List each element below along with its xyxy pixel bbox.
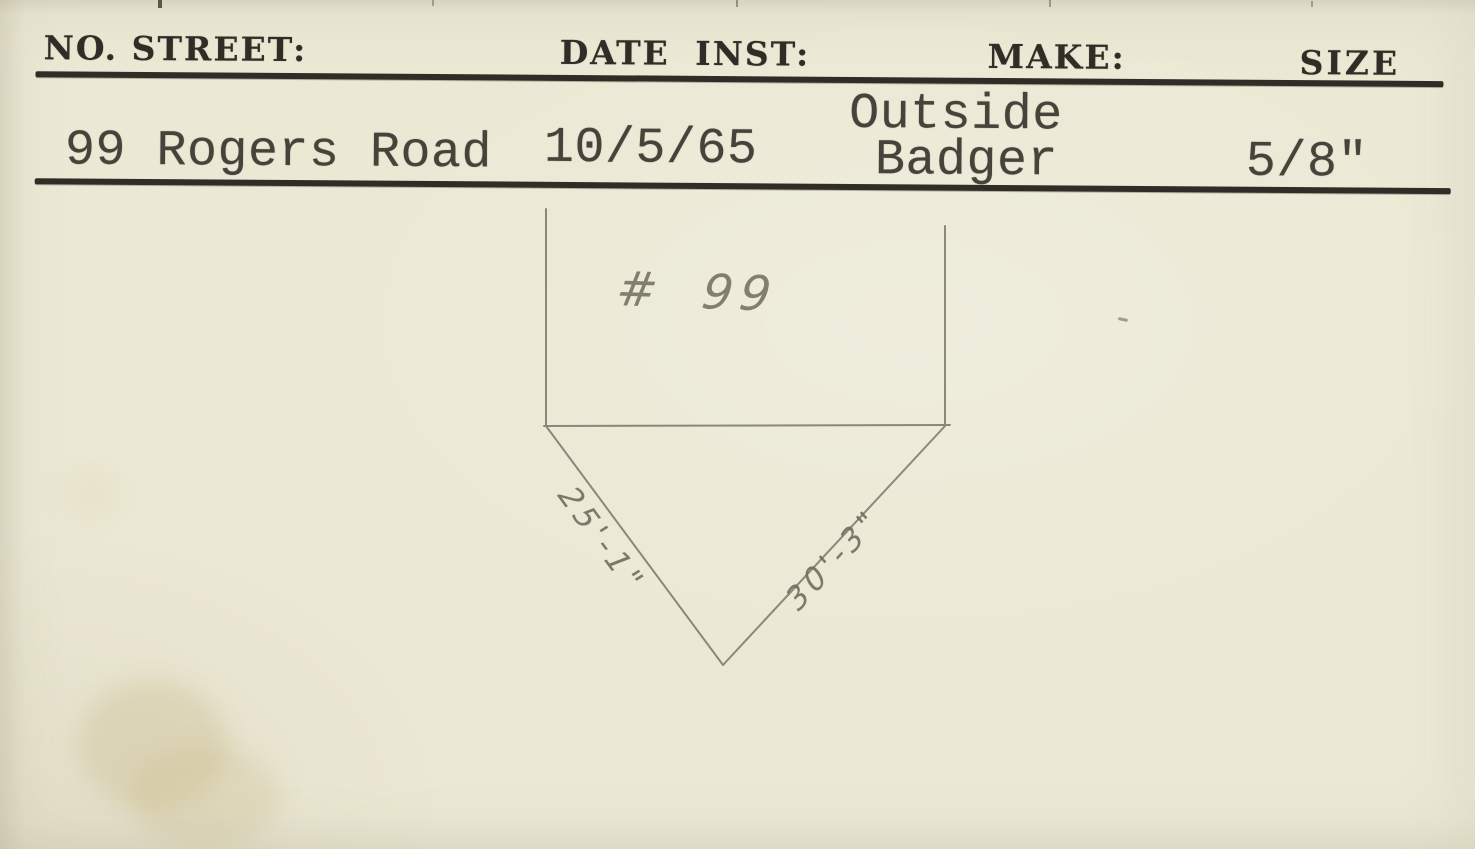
- sketch-left-diagonal-line: [546, 426, 723, 665]
- lot-sketch-lines: [0, 0, 1475, 849]
- sketch-frontage-line: [544, 425, 950, 426]
- meter-record-card: NO. STREET: DATE INST: MAKE: SIZE 99 Rog…: [0, 0, 1475, 849]
- house-number-annotation: # 99: [614, 265, 781, 318]
- lot-sketch: # 99 25'-1" 30'-3": [0, 0, 1475, 849]
